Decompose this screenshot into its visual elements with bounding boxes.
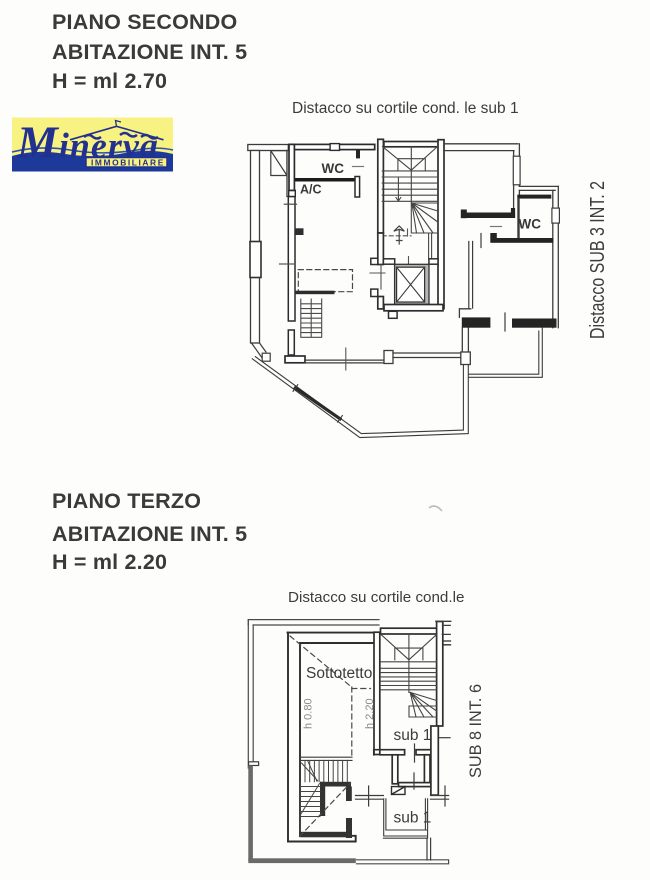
svg-text:IMMOBILIARE: IMMOBILIARE [91,158,165,168]
svg-text:WC: WC [519,217,542,232]
svg-text:h 0.80: h 0.80 [303,698,315,729]
svg-text:Distacco su cortile cond.le: Distacco su cortile cond.le [288,589,464,606]
svg-text:SUB 8 INT. 6: SUB 8 INT. 6 [467,684,485,778]
svg-text:Distacco SUB 3 INT. 2: Distacco SUB 3 INT. 2 [587,181,609,339]
svg-text:WC: WC [322,161,345,176]
svg-text:Distacco su cortile cond. le s: Distacco su cortile cond. le sub 1 [292,100,519,117]
svg-text:sub 1: sub 1 [394,727,432,744]
svg-text:sub 1: sub 1 [394,810,432,827]
svg-text:Sottotetto: Sottotetto [306,665,372,682]
svg-text:A/C: A/C [300,183,322,197]
